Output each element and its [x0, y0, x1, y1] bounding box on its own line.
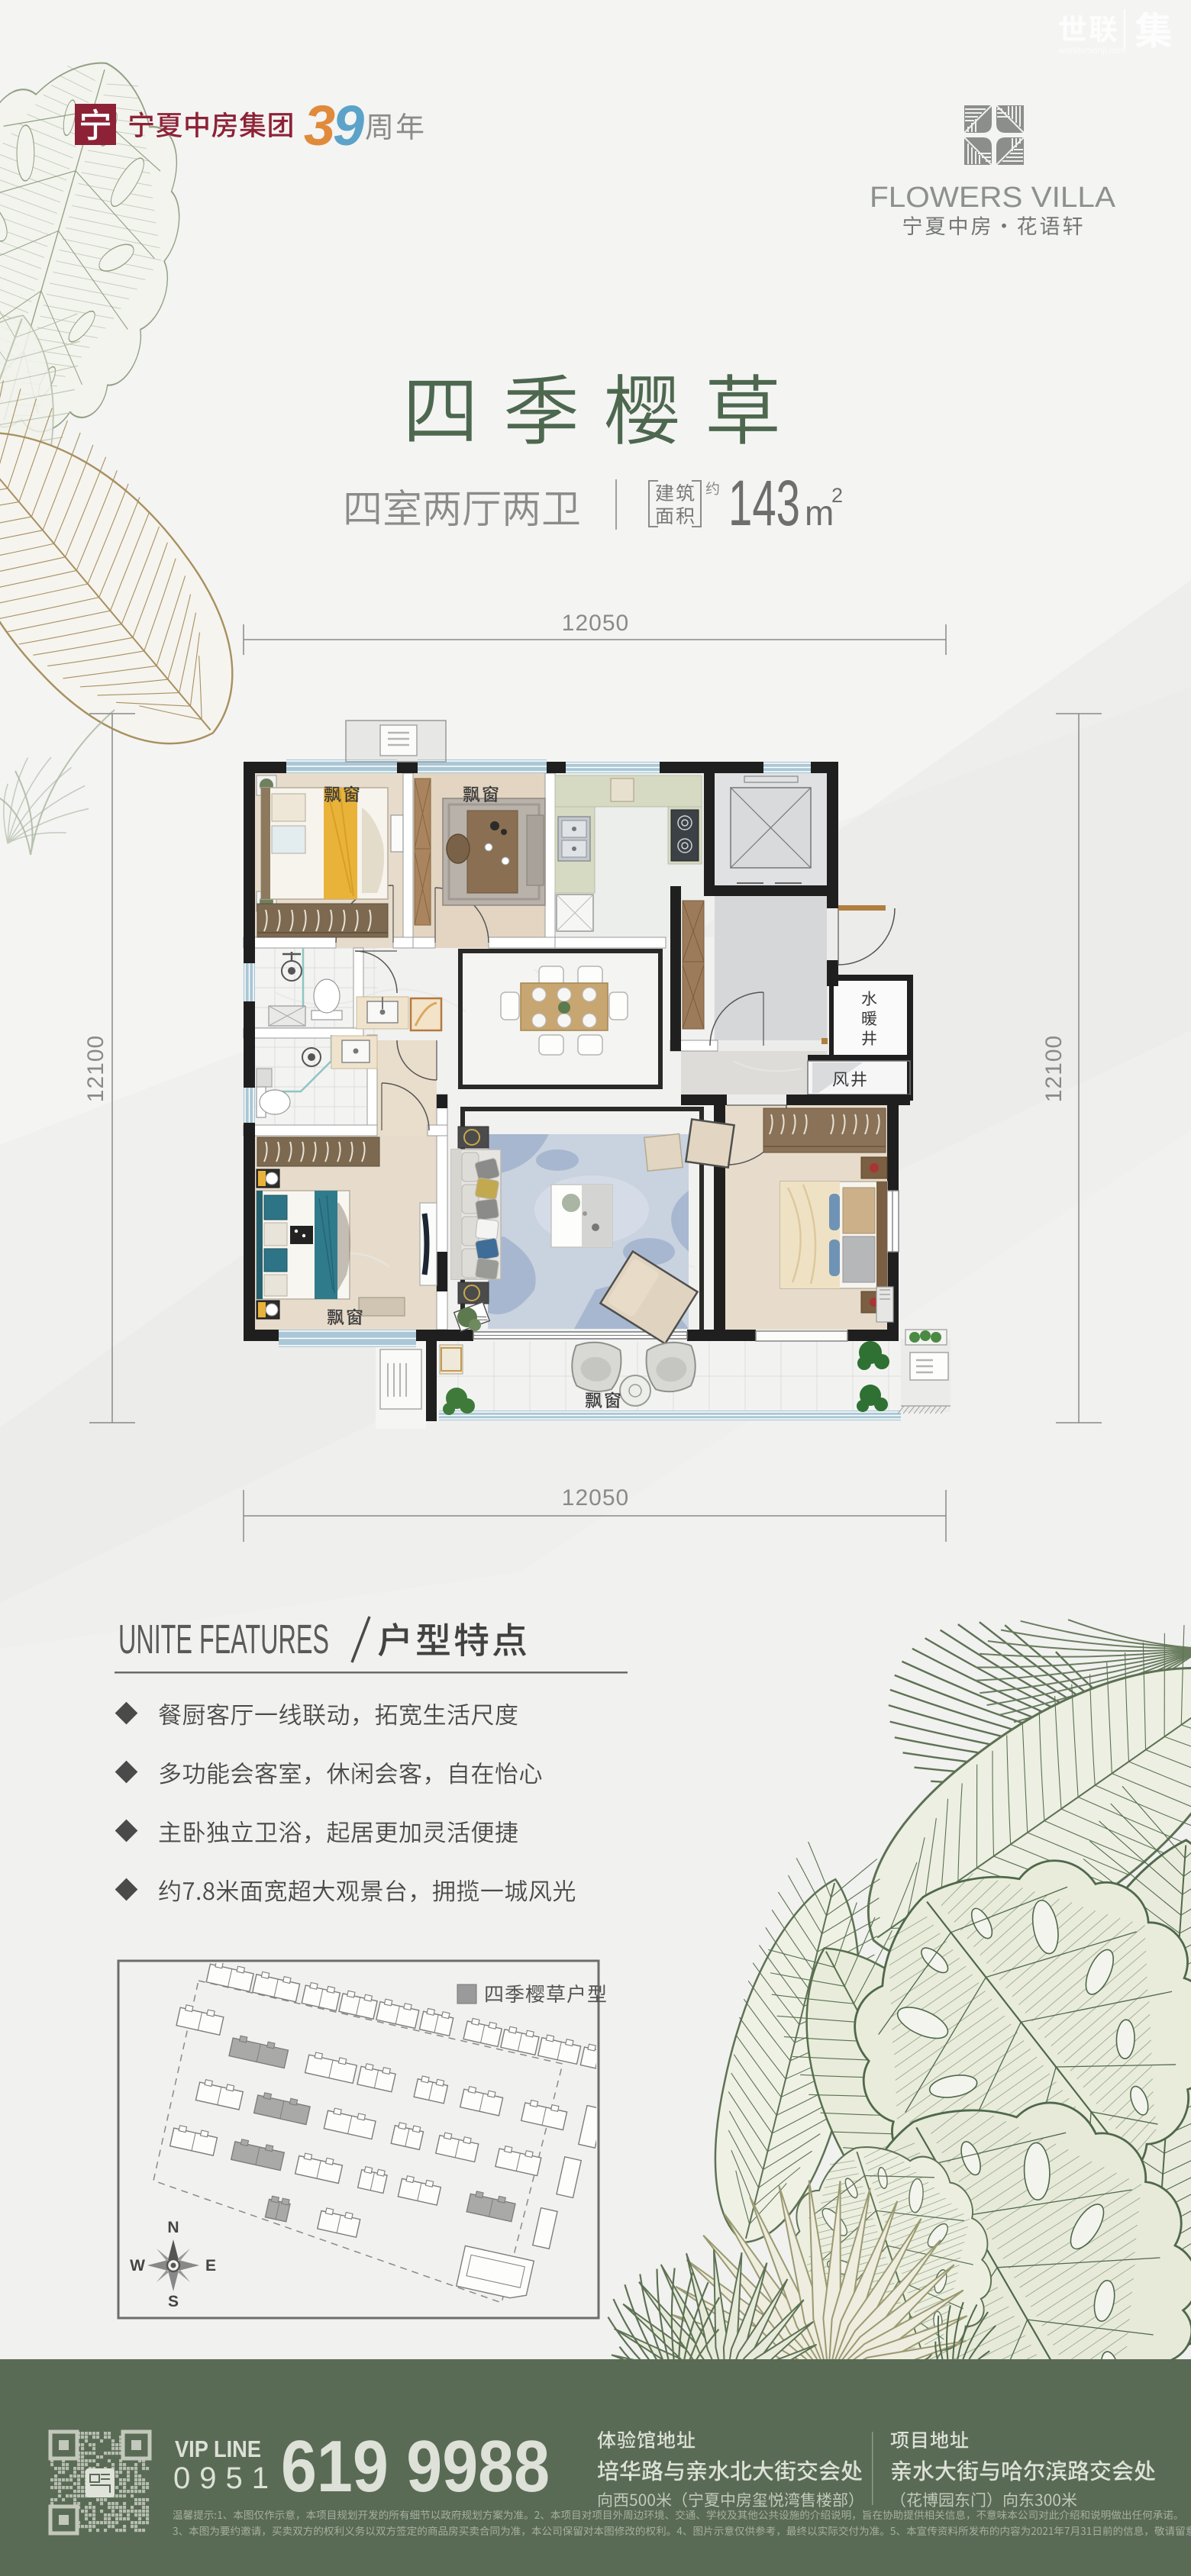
svg-text:UNITE FEATURES: UNITE FEATURES: [118, 1617, 329, 1662]
svg-text:E: E: [205, 2257, 216, 2275]
svg-text:143: 143: [728, 467, 800, 539]
svg-text:12100: 12100: [1041, 1035, 1067, 1102]
svg-text:619 9988: 619 9988: [281, 2426, 550, 2507]
svg-text:m: m: [805, 493, 834, 533]
svg-text:12050: 12050: [562, 611, 629, 636]
svg-text:worldunionji.com: worldunionji.com: [1057, 45, 1126, 56]
svg-text:12050: 12050: [562, 1485, 629, 1510]
svg-text:N: N: [167, 2219, 179, 2236]
svg-text:2: 2: [831, 484, 843, 507]
svg-text:12100: 12100: [83, 1035, 108, 1102]
svg-text:FLOWERS VILLA: FLOWERS VILLA: [870, 182, 1116, 214]
svg-text:3: 3: [304, 94, 335, 157]
svg-text:S: S: [168, 2293, 179, 2310]
svg-text:9: 9: [333, 94, 364, 157]
svg-text:W: W: [130, 2257, 145, 2275]
svg-text:VIP LINE: VIP LINE: [175, 2436, 261, 2462]
